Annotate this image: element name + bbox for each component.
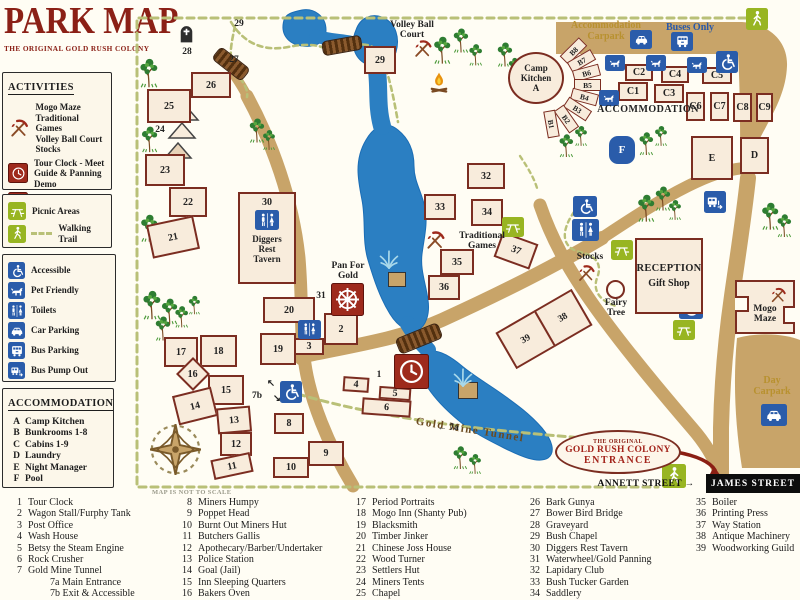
key-number: 22: [350, 554, 366, 565]
key-label: Wash House: [28, 531, 78, 542]
key-number: 14: [176, 565, 192, 576]
key-item-30: 30Diggers Rest Tavern: [524, 543, 652, 554]
key-label: Inn Sleeping Quarters: [198, 577, 286, 588]
gift-shop-label: Gift Shop: [648, 278, 689, 289]
key-label: 7a Main Entrance: [50, 577, 121, 588]
key-item-38: 38Antique Machinery: [690, 531, 794, 542]
day-carpark-area: [735, 334, 800, 468]
key-item-16: 16Bakers Oven: [176, 588, 322, 599]
key-item-20: 20Timber Jinker: [350, 531, 467, 542]
key-item-29: 29Bush Chapel: [524, 531, 652, 542]
key-item-17: 17Period Portraits: [350, 497, 467, 508]
key-label: Miners Tents: [372, 577, 424, 588]
key-number: 21: [350, 543, 366, 554]
key-number: 34: [524, 588, 540, 599]
key-item-4: 4Wash House: [6, 531, 135, 542]
key-item-9: 9Poppet Head: [176, 508, 322, 519]
key-number: 28: [524, 520, 540, 531]
key-item-11: 11Butchers Gallis: [176, 531, 322, 542]
not-to-scale-note: MAP IS NOT TO SCALE: [152, 489, 231, 496]
key-label: Gold Mine Tunnel: [28, 565, 102, 576]
key-number: 20: [350, 531, 366, 542]
key-item-6: 6Rock Crusher: [6, 554, 135, 565]
key-column-5: 35Boiler36Printing Press37Way Station38A…: [690, 497, 794, 554]
key-label: Butchers Gallis: [198, 531, 260, 542]
key-number: 36: [690, 508, 706, 519]
mogo-maze: Mogo Maze: [735, 280, 795, 334]
key-item-19: 19Blacksmith: [350, 520, 467, 531]
key-label: Printing Press: [712, 508, 768, 519]
key-item-35: 35Boiler: [690, 497, 794, 508]
key-label: Blacksmith: [372, 520, 418, 531]
key-item-36: 36Printing Press: [690, 508, 794, 519]
key-label: Bush Chapel: [546, 531, 597, 542]
entrance-line3: ENTRANCE: [584, 455, 652, 466]
map-key: 1Tour Clock2Wagon Stall/Furphy Tank3Post…: [6, 497, 798, 599]
key-number: 19: [350, 520, 366, 531]
key-item-23: 23Settlers Hut: [350, 565, 467, 576]
reception-label: RECEPTION: [636, 263, 701, 274]
pool-marker: F: [609, 136, 635, 164]
key-number: 16: [176, 588, 192, 599]
key-label: Period Portraits: [372, 497, 435, 508]
accommodation-carpark-area: [556, 22, 787, 192]
key-item-26: 26Bark Gunya: [524, 497, 652, 508]
key-number: 37: [690, 520, 706, 531]
key-number: 38: [690, 531, 706, 542]
key-item-24: 24Miners Tents: [350, 577, 467, 588]
key-label: Mogo Inn (Shanty Pub): [372, 508, 467, 519]
key-label: 7b Exit & Accessible: [50, 588, 135, 599]
james-street-sign: JAMES STREET: [706, 474, 800, 493]
key-label: Bush Tucker Garden: [546, 577, 629, 588]
entrance-sign: THE ORIGINAL GOLD RUSH COLONY ENTRANCE: [555, 430, 681, 474]
key-label: Wood Turner: [372, 554, 425, 565]
key-number: 10: [176, 520, 192, 531]
key-column-1: 1Tour Clock2Wagon Stall/Furphy Tank3Post…: [6, 497, 135, 600]
key-number: [28, 577, 44, 588]
key-number: 24: [350, 577, 366, 588]
key-item-2: 2Wagon Stall/Furphy Tank: [6, 508, 135, 519]
toilets-icon: [255, 210, 279, 230]
key-item-10: 10Burnt Out Miners Hut: [176, 520, 322, 531]
key-number: 27: [524, 508, 540, 519]
key-number: 17: [350, 497, 366, 508]
key-item-7a Main Entrance: 7a Main Entrance: [28, 577, 135, 588]
key-number: 15: [176, 577, 192, 588]
tavern-label: Diggers Rest Tavern: [252, 234, 282, 264]
key-number: 25: [350, 588, 366, 599]
key-number: 7: [6, 565, 22, 576]
key-label: Waterwheel/Gold Panning: [546, 554, 652, 565]
key-item-15: 15Inn Sleeping Quarters: [176, 577, 322, 588]
key-item-7: 7Gold Mine Tunnel: [6, 565, 135, 576]
key-item-39: 39Woodworking Guild: [690, 543, 794, 554]
key-label: Poppet Head: [198, 508, 249, 519]
key-label: Chapel: [372, 588, 400, 599]
key-number: 30: [524, 543, 540, 554]
key-item-5: 5Betsy the Steam Engine: [6, 543, 135, 554]
maze-notch: [783, 306, 795, 324]
key-number: 33: [524, 577, 540, 588]
key-item-28: 28Graveyard: [524, 520, 652, 531]
key-number: 18: [350, 508, 366, 519]
key-label: Miners Humpy: [198, 497, 259, 508]
key-label: Settlers Hut: [372, 565, 420, 576]
key-number: 11: [176, 531, 192, 542]
key-number: 31: [524, 554, 540, 565]
key-label: Rock Crusher: [28, 554, 83, 565]
key-column-2: 8Miners Humpy9Poppet Head10Burnt Out Min…: [176, 497, 322, 600]
key-label: Goal (Jail): [198, 565, 241, 576]
key-item-32: 32Lapidary Club: [524, 565, 652, 576]
key-label: Woodworking Guild: [712, 543, 794, 554]
key-column-3: 17Period Portraits18Mogo Inn (Shanty Pub…: [350, 497, 467, 600]
key-number: 29: [524, 531, 540, 542]
key-label: Antique Machinery: [712, 531, 790, 542]
key-item-3: 3Post Office: [6, 520, 135, 531]
key-number: 35: [690, 497, 706, 508]
key-number: 5: [6, 543, 22, 554]
key-label: Saddlery: [546, 588, 582, 599]
key-item-12: 12Apothecary/Barber/Undertaker: [176, 543, 322, 554]
pickaxe-icon: [769, 286, 787, 304]
diggers-rest-tavern: 30 Diggers Rest Tavern: [238, 192, 296, 284]
key-label: Betsy the Steam Engine: [28, 543, 124, 554]
key-label: Diggers Rest Tavern: [546, 543, 628, 554]
key-item-21: 21Chinese Joss House: [350, 543, 467, 554]
key-number: 2: [6, 508, 22, 519]
key-label: Bakers Oven: [198, 588, 250, 599]
key-label: Apothecary/Barber/Undertaker: [198, 543, 322, 554]
key-label: Boiler: [712, 497, 737, 508]
key-item-7b Exit & Accessible: 7b Exit & Accessible: [28, 588, 135, 599]
key-item-25: 25Chapel: [350, 588, 467, 599]
key-number: 6: [6, 554, 22, 565]
tavern-number: 30: [262, 197, 272, 208]
key-label: Wagon Stall/Furphy Tank: [28, 508, 131, 519]
key-item-1: 1Tour Clock: [6, 497, 135, 508]
maze-notch: [735, 296, 749, 312]
key-number: 1: [6, 497, 22, 508]
key-label: Way Station: [712, 520, 761, 531]
reception-gift-shop: RECEPTION Gift Shop: [635, 238, 703, 314]
key-number: 3: [6, 520, 22, 531]
key-item-14: 14Goal (Jail): [176, 565, 322, 576]
key-number: 9: [176, 508, 192, 519]
key-label: Bower Bird Bridge: [546, 508, 623, 519]
mogo-maze-label: Mogo Maze: [753, 304, 776, 324]
key-number: 23: [350, 565, 366, 576]
key-label: Tour Clock: [28, 497, 73, 508]
entrance-line2: GOLD RUSH COLONY: [565, 445, 671, 455]
key-label: Graveyard: [546, 520, 588, 531]
key-label: Police Station: [198, 554, 254, 565]
key-item-18: 18Mogo Inn (Shanty Pub): [350, 508, 467, 519]
key-number: [28, 588, 44, 599]
key-label: Burnt Out Miners Hut: [198, 520, 287, 531]
key-item-22: 22Wood Turner: [350, 554, 467, 565]
camp-kitchen: Camp Kitchen A: [508, 52, 564, 104]
key-item-37: 37Way Station: [690, 520, 794, 531]
key-number: 4: [6, 531, 22, 542]
key-column-4: 26Bark Gunya27Bower Bird Bridge28Graveya…: [524, 497, 652, 600]
key-number: 8: [176, 497, 192, 508]
key-number: 12: [176, 543, 192, 554]
key-item-27: 27Bower Bird Bridge: [524, 508, 652, 519]
key-number: 26: [524, 497, 540, 508]
key-number: 39: [690, 543, 706, 554]
key-item-34: 34Saddlery: [524, 588, 652, 599]
key-number: 32: [524, 565, 540, 576]
key-item-33: 33Bush Tucker Garden: [524, 577, 652, 588]
key-label: Post Office: [28, 520, 73, 531]
key-label: Bark Gunya: [546, 497, 595, 508]
key-number: 13: [176, 554, 192, 565]
key-item-13: 13Police Station: [176, 554, 322, 565]
key-label: Lapidary Club: [546, 565, 604, 576]
key-item-8: 8Miners Humpy: [176, 497, 322, 508]
key-item-31: 31Waterwheel/Gold Panning: [524, 554, 652, 565]
key-label: Timber Jinker: [372, 531, 428, 542]
key-label: Chinese Joss House: [372, 543, 451, 554]
fairy-tree-marker: [606, 280, 625, 299]
